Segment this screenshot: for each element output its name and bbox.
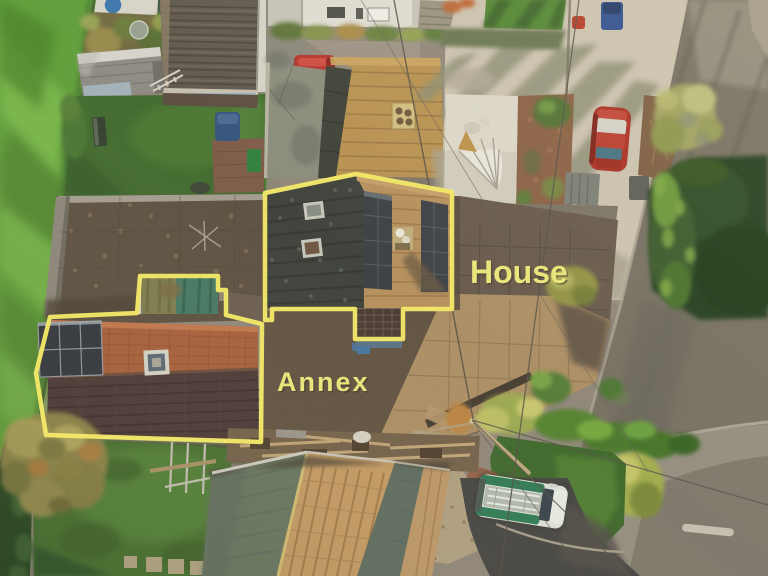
svg-text:House: House — [470, 254, 568, 290]
svg-text:Annex: Annex — [277, 367, 370, 397]
